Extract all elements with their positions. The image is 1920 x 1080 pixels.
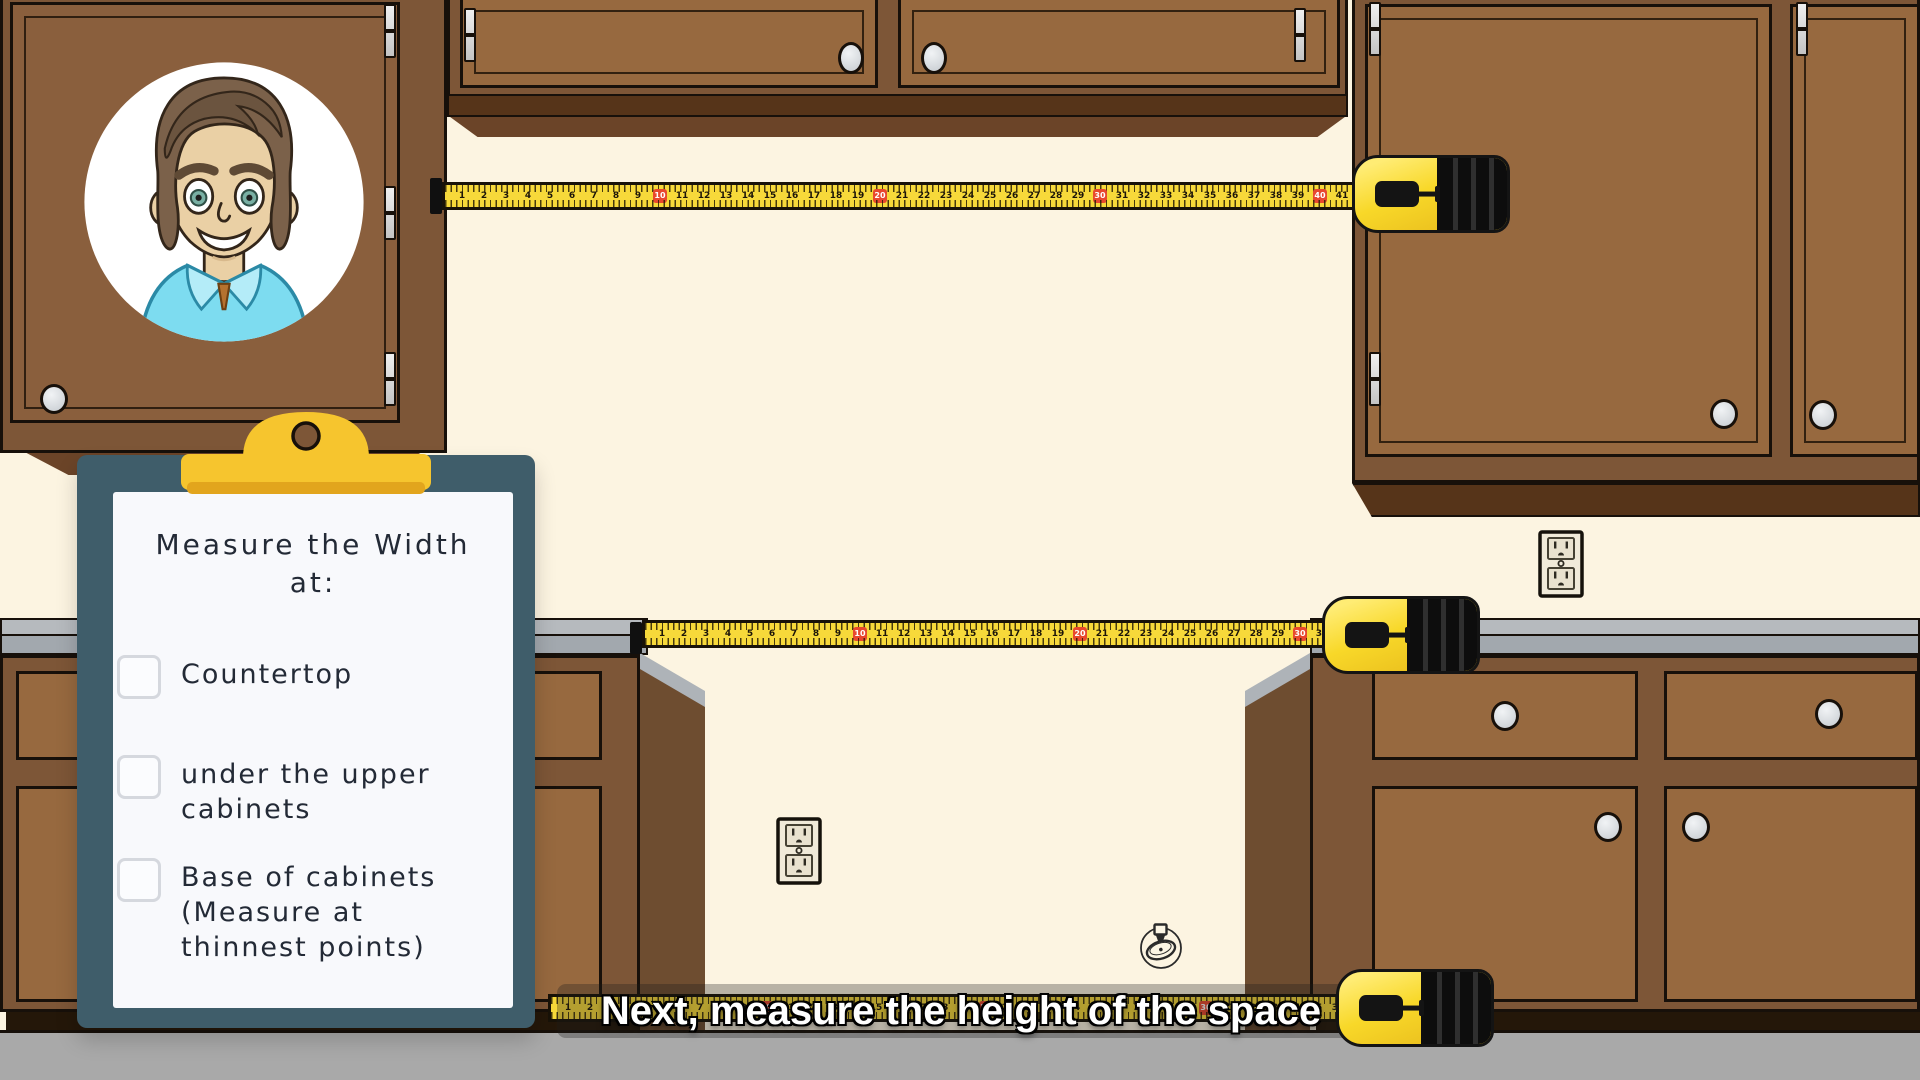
upper-middle-molding	[441, 117, 1354, 137]
tape-case-grip	[1421, 972, 1491, 1044]
kitchen-measuring-illustration: 1234567891011121314151617181920212223242…	[0, 0, 1920, 1080]
hinge-icon	[384, 4, 396, 58]
tape-number: 1	[451, 191, 473, 201]
tape-measure-blade: 1234567891011121314151617181920212223242…	[642, 620, 1332, 648]
right-cabinet-side-panel	[1245, 653, 1310, 1030]
tape-number: 9	[827, 629, 849, 639]
door-panel-outline	[1804, 18, 1906, 443]
upper-right-right-door	[1790, 4, 1920, 457]
checklist-item: Countertop	[117, 655, 353, 699]
checkbox-under-upper-cabinets	[117, 755, 161, 799]
tape-hook	[430, 178, 442, 214]
tape-number: 35	[1199, 191, 1221, 201]
checklist-item-label: under the upper cabinets	[181, 755, 449, 827]
tape-number: 2	[473, 191, 495, 201]
tape-number: 14	[737, 191, 759, 201]
tape-number: 40	[1313, 189, 1327, 203]
tape-number: 10	[653, 189, 667, 203]
tape-number: 29	[1267, 629, 1289, 639]
tape-case-lock-button	[1375, 181, 1419, 207]
tape-number: 30	[1093, 189, 1107, 203]
tape-number: 2	[673, 629, 695, 639]
checklist-subtitle: at:	[113, 566, 513, 599]
tape-number: 4	[717, 629, 739, 639]
tape-number: 19	[1047, 629, 1069, 639]
tape-number: 18	[1025, 629, 1047, 639]
tape-number: 14	[937, 629, 959, 639]
tape-number: 38	[1265, 191, 1287, 201]
tape-number: 12	[893, 629, 915, 639]
subtitle-caption-text: Next, measure the height of the space	[601, 989, 1321, 1034]
tape-number: 7	[783, 629, 805, 639]
drawer-knob	[1815, 699, 1843, 729]
tape-measure-case	[1322, 596, 1480, 674]
checklist-item-label: Base of cabinets (Measure at thinnest po…	[181, 858, 449, 965]
lower-right-drawer-2	[1664, 671, 1918, 760]
hinge-icon	[1369, 2, 1381, 56]
tape-case-lock-button	[1359, 995, 1403, 1021]
tape-number: 41	[1331, 191, 1353, 201]
hinge-icon	[464, 8, 476, 62]
upper-middle-bottom-board	[447, 94, 1348, 117]
tape-number: 17	[1003, 629, 1025, 639]
tape-number: 8	[805, 629, 827, 639]
tape-number: 3	[495, 191, 517, 201]
tape-number: 12	[693, 191, 715, 201]
tape-number: 37	[1243, 191, 1265, 201]
tape-number: 8	[605, 191, 627, 201]
watermark-dish-icon	[1135, 921, 1187, 973]
checkbox-countertop	[117, 655, 161, 699]
door-knob	[1682, 812, 1710, 842]
door-panel-outline	[474, 10, 864, 74]
tape-number: 24	[957, 191, 979, 201]
tape-case-grip	[1437, 158, 1507, 230]
tape-number: 6	[761, 629, 783, 639]
tape-number: 22	[1113, 629, 1135, 639]
tape-number: 32	[1133, 191, 1155, 201]
left-cabinet-side-panel	[640, 653, 705, 1030]
tape-number: 34	[1177, 191, 1199, 201]
upper-middle-right-knob	[921, 42, 947, 74]
checklist-item: Base of cabinets (Measure at thinnest po…	[117, 858, 449, 965]
tape-number: 24	[1157, 629, 1179, 639]
upper-middle-left-knob	[838, 42, 864, 74]
upper-middle-left-door	[460, 0, 878, 88]
tape-number: 6	[561, 191, 583, 201]
tape-number: 28	[1245, 629, 1267, 639]
hinge-icon	[1369, 352, 1381, 406]
tape-number: 15	[759, 191, 781, 201]
tape-number: 33	[1155, 191, 1177, 201]
upper-middle-right-door	[898, 0, 1340, 88]
tape-number: 36	[1221, 191, 1243, 201]
tape-number: 16	[781, 191, 803, 201]
tape-number: 29	[1067, 191, 1089, 201]
upper-right-right-knob	[1809, 400, 1837, 430]
tape-number: 23	[935, 191, 957, 201]
tape-number: 15	[959, 629, 981, 639]
clipboard-paper: Measure the Width at: Countertop under t…	[113, 492, 513, 1008]
tape-number: 26	[1201, 629, 1223, 639]
tape-number: 28	[1045, 191, 1067, 201]
hinge-icon	[1294, 8, 1306, 62]
tape-number: 20	[873, 189, 887, 203]
tape-number: 26	[1001, 191, 1023, 201]
checkbox-base-of-cabinets	[117, 858, 161, 902]
upper-right-left-knob	[1710, 399, 1738, 429]
tape-measure-case	[1352, 155, 1510, 233]
clipboard-clip	[181, 406, 431, 502]
tape-number: 5	[539, 191, 561, 201]
upper-right-bottom-board	[1352, 483, 1920, 517]
tape-number: 7	[583, 191, 605, 201]
tape-number: 25	[979, 191, 1001, 201]
tape-number: 39	[1287, 191, 1309, 201]
tape-number: 23	[1135, 629, 1157, 639]
checklist-item: under the upper cabinets	[117, 755, 449, 827]
tape-number: 11	[871, 629, 893, 639]
electrical-outlet-icon	[1538, 530, 1584, 598]
tape-number: 22	[913, 191, 935, 201]
tape-number: 19	[847, 191, 869, 201]
tape-number: 11	[671, 191, 693, 201]
tape-hook	[630, 622, 642, 654]
tape-number: 3	[695, 629, 717, 639]
checklist-item-label: Countertop	[181, 655, 353, 692]
tape-number: 27	[1223, 629, 1245, 639]
tape-number: 16	[981, 629, 1003, 639]
hinge-icon	[384, 352, 396, 406]
tape-number: 21	[1091, 629, 1113, 639]
door-panel-outline	[912, 10, 1326, 74]
tape-number: 13	[715, 191, 737, 201]
tape-number: 10	[853, 627, 867, 641]
tape-number: 4	[517, 191, 539, 201]
drawer-knob	[1491, 701, 1519, 731]
tape-measure-case	[1336, 969, 1494, 1047]
upper-left-door-knob	[40, 384, 68, 414]
tape-number: 13	[915, 629, 937, 639]
tape-case-grip	[1407, 599, 1477, 671]
electrical-outlet-icon	[776, 816, 822, 886]
tape-case-lock-button	[1345, 622, 1389, 648]
tape-number: 9	[627, 191, 649, 201]
tape-number: 18	[825, 191, 847, 201]
tape-number: 27	[1023, 191, 1045, 201]
presenter-avatar	[83, 61, 365, 343]
tape-number: 30	[1293, 627, 1307, 641]
tape-number: 21	[891, 191, 913, 201]
subtitle-caption-bar: Next, measure the height of the space	[557, 984, 1365, 1038]
tape-number: 17	[803, 191, 825, 201]
tape-measure-blade: 1234567891011121314151617181920212223242…	[442, 182, 1355, 210]
hinge-icon	[1796, 2, 1808, 56]
tape-number: 20	[1073, 627, 1087, 641]
hinge-icon	[384, 186, 396, 240]
tape-number: 25	[1179, 629, 1201, 639]
door-knob	[1594, 812, 1622, 842]
tape-number: 31	[1111, 191, 1133, 201]
tape-number: 5	[739, 629, 761, 639]
tape-number: 1	[651, 629, 673, 639]
checklist-title: Measure the Width	[113, 528, 513, 561]
